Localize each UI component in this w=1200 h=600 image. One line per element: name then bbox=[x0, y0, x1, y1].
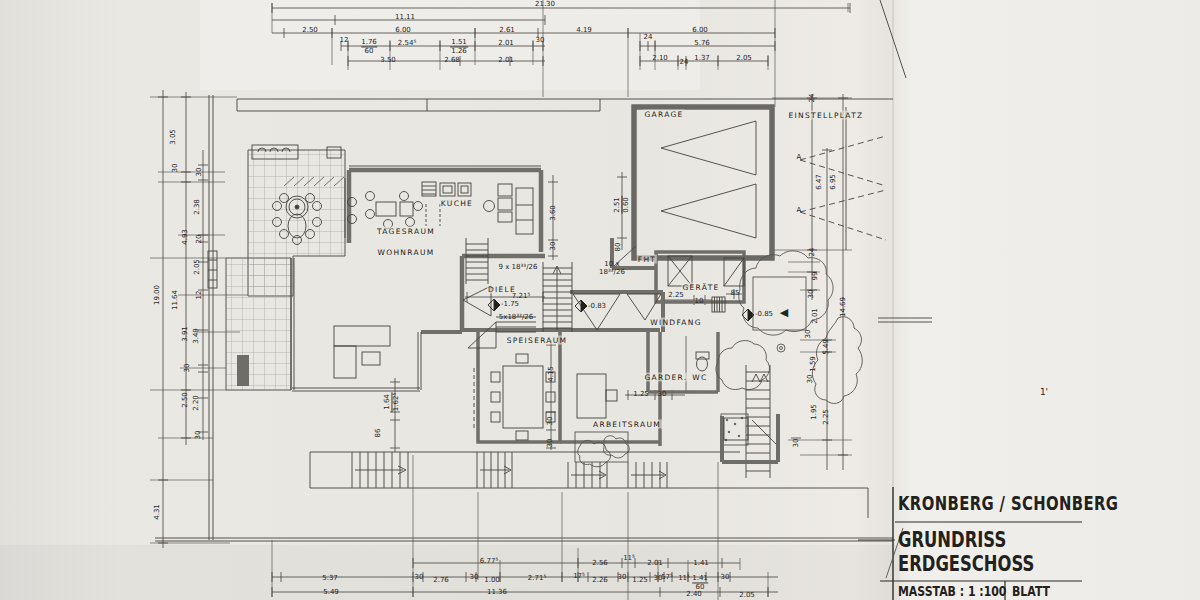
dimension-lines-top bbox=[272, 0, 850, 107]
tree-trunk-mark bbox=[777, 344, 785, 352]
planting-bed-south bbox=[575, 432, 629, 467]
tree-blob-medium bbox=[716, 341, 770, 390]
tagesraum-table bbox=[348, 192, 423, 229]
wc-fixtures bbox=[696, 352, 709, 371]
dimension-lines-right bbox=[772, 94, 852, 470]
desk bbox=[577, 374, 617, 418]
chimney-block bbox=[237, 355, 249, 386]
main-stair bbox=[543, 262, 572, 332]
titleblock-project: KRONBERG / SCHONBERG bbox=[898, 492, 1118, 514]
dining-table bbox=[491, 354, 555, 440]
tiled-terrace bbox=[208, 145, 345, 390]
titleblock-drawing-subtitle: ERDGESCHOSS bbox=[898, 552, 1034, 576]
garage bbox=[614, 107, 772, 266]
door-swings bbox=[463, 286, 661, 348]
kitchen-fixtures bbox=[422, 182, 533, 234]
tree-blob-east bbox=[812, 317, 862, 404]
titleblock-scale: MASSTAB : 1 :100 bbox=[898, 583, 1006, 599]
trees-and-planting bbox=[575, 251, 862, 467]
site-lines bbox=[155, 368, 893, 541]
garden-stair-3 bbox=[628, 462, 667, 488]
scanned-page: GARAGEEINSTELLPLATZKUCHETAGESRAUMWOHNRAU… bbox=[0, 0, 1200, 600]
garden-stair-1 bbox=[477, 452, 512, 488]
corner-marks bbox=[878, 0, 932, 322]
garden-bed-east bbox=[753, 277, 806, 330]
cellar-stair bbox=[466, 238, 488, 284]
sofa-group bbox=[334, 326, 390, 378]
dimension-lines-inner bbox=[390, 172, 742, 452]
furniture bbox=[334, 182, 709, 440]
garden-stair-west bbox=[352, 452, 408, 488]
dimension-lines-bottom bbox=[272, 455, 778, 600]
garage-car-markers bbox=[661, 121, 756, 238]
titleblock-sheet: BLATT bbox=[1012, 583, 1050, 599]
walls bbox=[349, 170, 744, 446]
titleblock-drawing-title: GRUNDRISS bbox=[898, 528, 1006, 552]
